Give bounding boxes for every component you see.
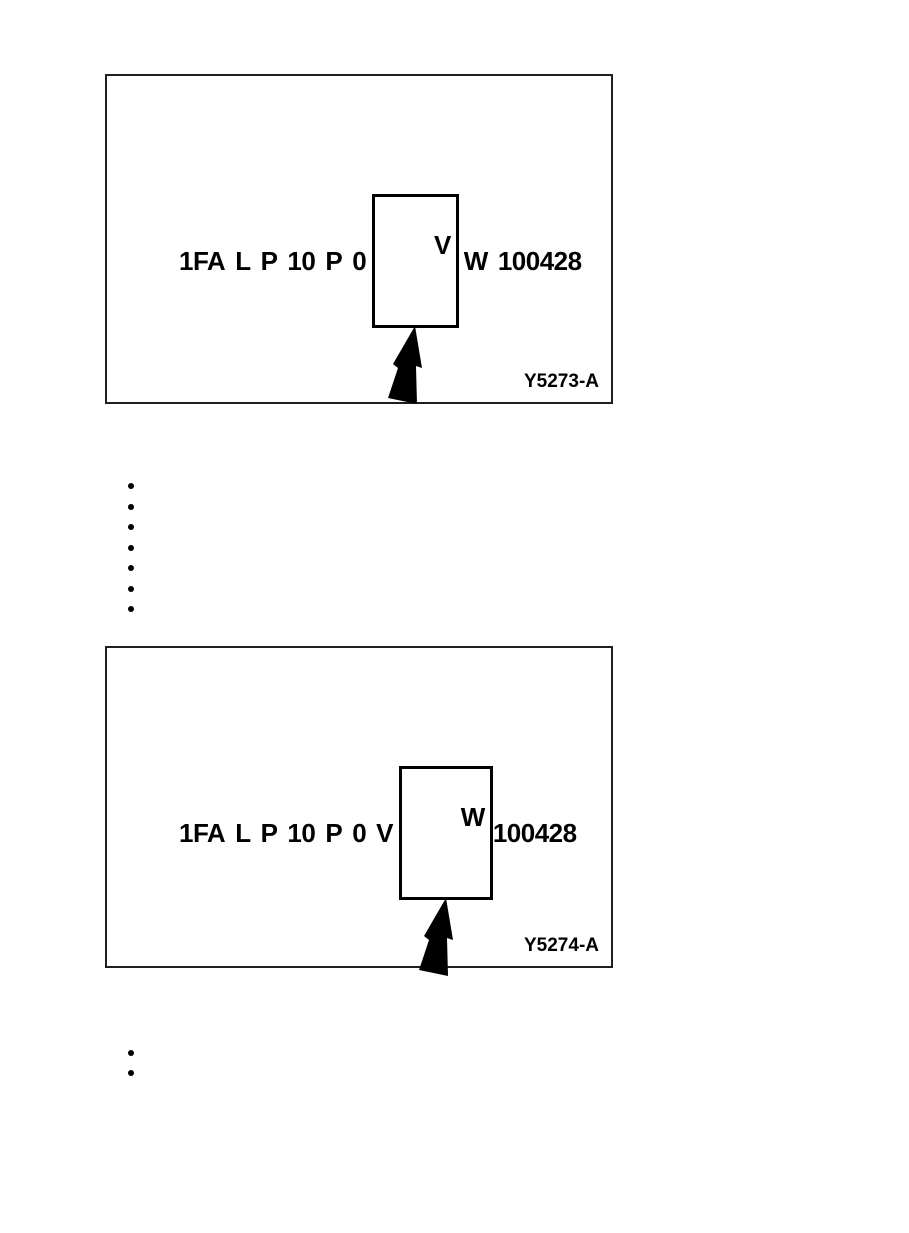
bullet-marker-icon xyxy=(128,1070,134,1076)
vin-segment: 0 xyxy=(352,818,366,849)
vin-segment: P xyxy=(261,818,278,849)
vin-segment: 100428 xyxy=(493,818,577,849)
vin-segment: P xyxy=(261,246,278,277)
vin-segment: P xyxy=(325,818,342,849)
vin-highlighted-character: V xyxy=(372,194,459,328)
list-item xyxy=(128,606,148,612)
figure-label: Y5273-A xyxy=(524,371,599,393)
vin-segment: 1FA xyxy=(179,818,225,849)
bullet-marker-icon xyxy=(128,565,134,571)
bullet-marker-icon xyxy=(128,1050,134,1056)
vin-segment: W xyxy=(461,802,485,832)
figure-label: Y5274-A xyxy=(524,935,599,957)
vin-segment: 1FA xyxy=(179,246,225,277)
document-page: 1FA L P 10 P 0 V W 100428 Y5273-A xyxy=(0,0,909,1233)
bullet-list xyxy=(128,1050,148,1076)
vin-code-row: 1FA L P 10 P 0 V W 100428 xyxy=(179,766,577,900)
bullet-marker-icon xyxy=(128,586,134,592)
list-item xyxy=(128,586,148,592)
vin-code-row: 1FA L P 10 P 0 V W 100428 xyxy=(179,194,582,328)
bullet-list xyxy=(128,483,148,612)
list-item xyxy=(128,524,148,530)
list-item xyxy=(128,565,148,571)
vin-segment: L xyxy=(235,818,250,849)
vin-segment: 0 xyxy=(352,246,366,277)
vin-segment: 10 xyxy=(287,246,315,277)
list-item xyxy=(128,483,148,489)
bullet-marker-icon xyxy=(128,504,134,510)
vin-segment: W xyxy=(464,246,488,277)
vin-segment: V xyxy=(434,230,451,260)
vin-figure-y5274: 1FA L P 10 P 0 V W 100428 Y5274-A xyxy=(105,646,613,968)
bullet-marker-icon xyxy=(128,524,134,530)
bullet-marker-icon xyxy=(128,483,134,489)
vin-segment: V xyxy=(376,818,393,849)
bullet-marker-icon xyxy=(128,545,134,551)
list-item xyxy=(128,1070,148,1076)
list-item xyxy=(128,545,148,551)
vin-segment: 100428 xyxy=(498,246,582,277)
bullet-marker-icon xyxy=(128,606,134,612)
vin-segment: P xyxy=(325,246,342,277)
pointer-arrow-icon xyxy=(419,897,454,977)
list-item xyxy=(128,1050,148,1056)
vin-highlighted-character: W xyxy=(399,766,493,900)
vin-figure-y5273: 1FA L P 10 P 0 V W 100428 Y5273-A xyxy=(105,74,613,404)
pointer-arrow-icon xyxy=(388,325,423,405)
vin-segment: 10 xyxy=(287,818,315,849)
vin-segment: L xyxy=(235,246,250,277)
list-item xyxy=(128,504,148,510)
